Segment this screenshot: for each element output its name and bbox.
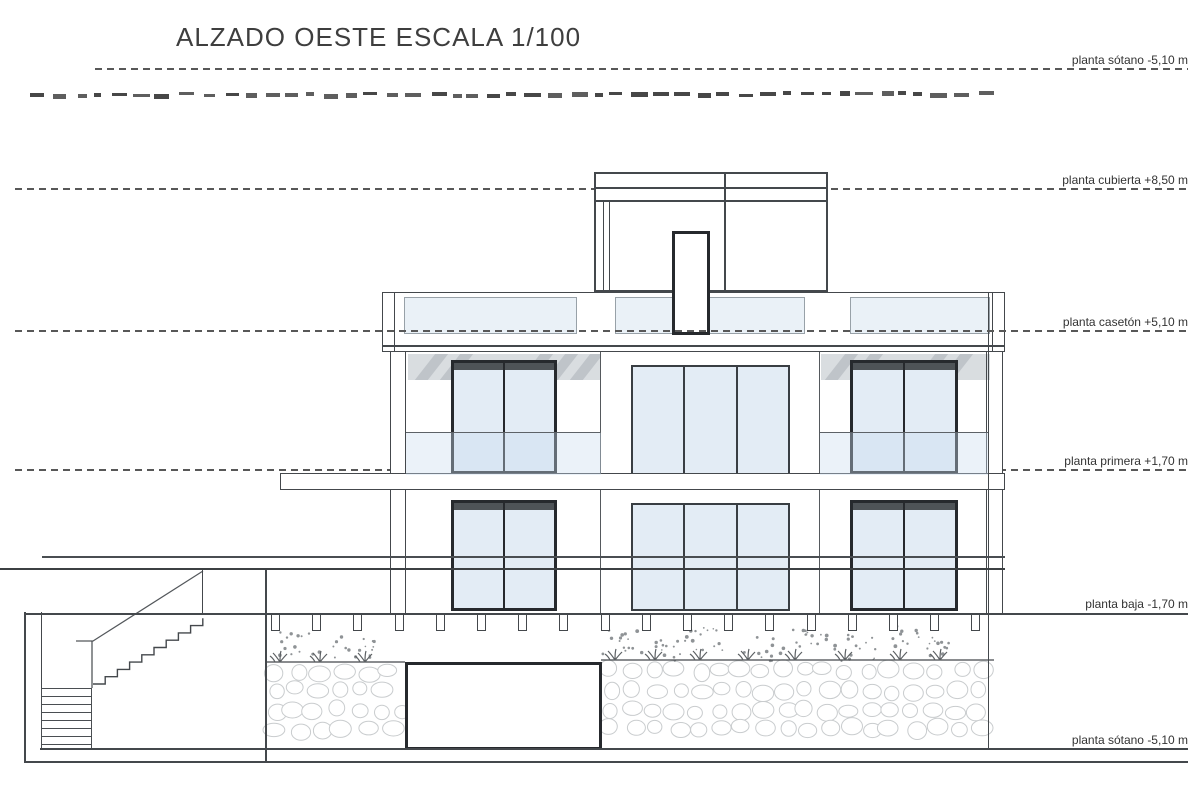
boundary-dash [653,92,669,96]
level-line-sotano-top [95,68,1188,70]
level-line-baja [25,613,1188,615]
caseton-door [672,231,710,335]
plant-sprigs [270,649,947,662]
pilotis-tick [889,615,898,631]
stair-pit-wall [265,570,267,763]
terrain-line-upper [42,556,1005,558]
boundary-dash [405,93,421,97]
boundary-dash [631,92,648,97]
pilotis-tick [601,615,610,631]
pilotis-tick [518,615,527,631]
boundary-dash [466,94,478,97]
boundary-dash [30,93,44,97]
boundary-dash [226,93,239,96]
boundary-dash [840,91,850,95]
window-first-center [631,365,790,475]
boundary-dash [979,91,994,94]
boundary-dash [882,91,894,95]
terrace-end-post-left [383,293,395,351]
pilotis-tick [765,615,774,631]
pilotis-tick [271,615,280,631]
basement-pool [405,662,602,750]
boundary-dash [506,92,515,96]
boundary-dash [154,94,169,99]
level-line-sheet-bottom [25,761,1188,763]
boundary-dash [363,92,377,95]
boundary-dash [179,92,194,95]
pilotis-tick [971,615,980,631]
level-label-sotano-top: planta sótano -5,10 m [1012,53,1188,67]
terrace-glass-right [850,297,990,334]
boundary-dash [432,92,447,96]
terrace-glass-left [404,297,577,334]
boundary-dash [595,93,603,96]
caseton-wall-line [603,202,604,292]
boundary-dash [78,94,87,97]
stair-steps [93,618,203,684]
boundary-dash [112,93,127,96]
level-label-sotano-bottom: planta sótano -5,10 m [1012,733,1188,747]
boundary-dash [855,92,873,95]
boundary-dash [94,93,101,96]
terrace-glass-center [615,297,805,334]
boundary-dash [524,93,541,98]
pilotis-tick [559,615,568,631]
first-floor-slab [280,473,1005,490]
caseton-divider [724,173,726,291]
terrain-line [0,568,1005,570]
elevation-drawing-sheet: ALZADO OESTE ESCALA 1/100 planta sótano … [0,0,1200,797]
level-label-cubierta: planta cubierta +8,50 m [1012,173,1188,187]
level-label-caseton: planta casetón +5,10 m [1012,315,1188,329]
window-glass [633,367,788,473]
boundary-dash [306,92,314,97]
pilotis-tick [848,615,857,631]
boundary-dash [760,92,776,97]
pilotis-tick [353,615,362,631]
pilotis-tick [642,615,651,631]
boundary-dash [913,92,922,95]
basement-wall-right [988,292,989,750]
boundary-dash [572,92,589,97]
stair-handrail [76,571,203,641]
level-label-baja: planta baja -1,70 m [1012,597,1188,611]
boundary-dash [898,91,906,95]
boundary-dash [783,91,791,94]
boundary-dash [53,94,66,99]
caseton-wall-line-2 [609,202,610,292]
terrace-slab-line [382,345,1005,347]
level-line-caseton [15,330,1188,332]
boundary-dash [324,94,338,98]
window-mullion [736,367,738,473]
boundary-dash [698,93,711,98]
level-line-sotano-floor [40,748,1188,750]
balcony-balustrade-right [820,432,988,475]
terrace-end-post-right [992,293,1004,351]
pilotis-tick [807,615,816,631]
caseton-parapet-line [596,187,826,189]
boundary-dash [716,92,729,96]
pilotis-tick [683,615,692,631]
level-label-primera: planta primera +1,70 m [1012,454,1188,468]
pilotis-tick [312,615,321,631]
boundary-dash [387,93,399,97]
pilotis-tick [477,615,486,631]
bay-divider [600,490,601,614]
window-mullion [683,367,685,473]
caseton-box [594,172,828,292]
boundary-dash [609,92,622,96]
boundary-dash [204,94,215,98]
boundary-dash [346,93,357,97]
boundary-dash [739,94,752,97]
boundary-dash [801,92,814,95]
plot-boundary-dash-band [30,90,1005,101]
boundary-dash [453,94,462,98]
pilotis-tick [930,615,939,631]
boundary-dash [954,93,970,98]
boundary-dash [487,94,501,99]
boundary-dash [266,93,279,97]
caseton-parapet-line-2 [596,200,826,202]
drawing-title: ALZADO OESTE ESCALA 1/100 [176,22,581,53]
pilotis-tick [395,615,404,631]
bay-divider [819,490,820,614]
boundary-dash [133,94,150,97]
balcony-balustrade-left [406,432,601,475]
boundary-dash [285,93,299,97]
boundary-dash [674,92,690,96]
boundary-dash [246,93,256,98]
stair-wall-line [202,570,203,615]
ladder-grate [41,688,92,750]
boundary-dash [930,93,948,98]
boundary-dash [548,93,561,98]
basement-wall-left-outer [24,612,26,763]
pilotis-tick [436,615,445,631]
pilotis-tick [724,615,733,631]
pebble-fill [263,660,993,741]
boundary-dash [822,92,831,95]
